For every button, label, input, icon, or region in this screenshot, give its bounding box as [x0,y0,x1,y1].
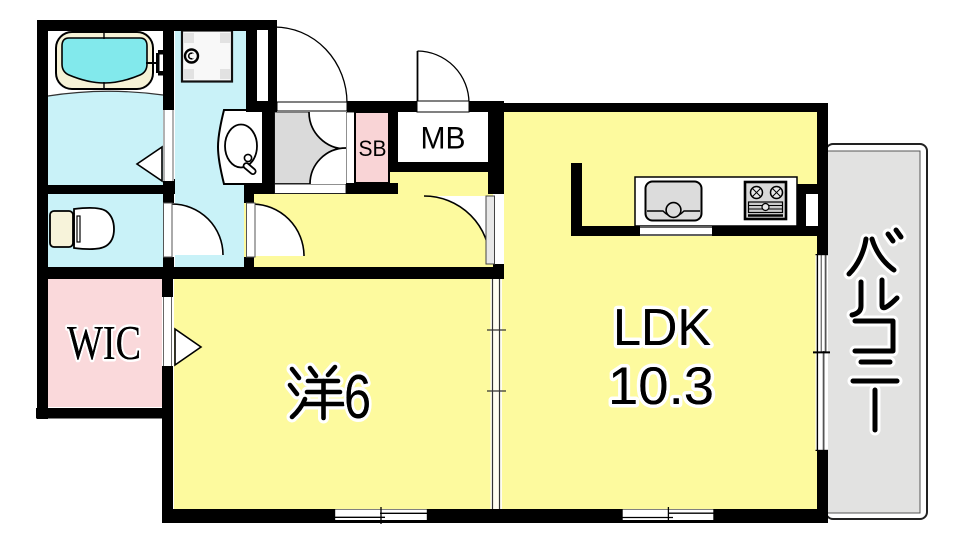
svg-text:LDK: LDK [613,299,711,357]
svg-text:SB: SB [359,136,387,161]
svg-text:6: 6 [344,363,371,432]
svg-text:WIC: WIC [67,315,141,370]
svg-text:10.3: 10.3 [608,357,714,416]
svg-text:MB: MB [421,120,466,156]
